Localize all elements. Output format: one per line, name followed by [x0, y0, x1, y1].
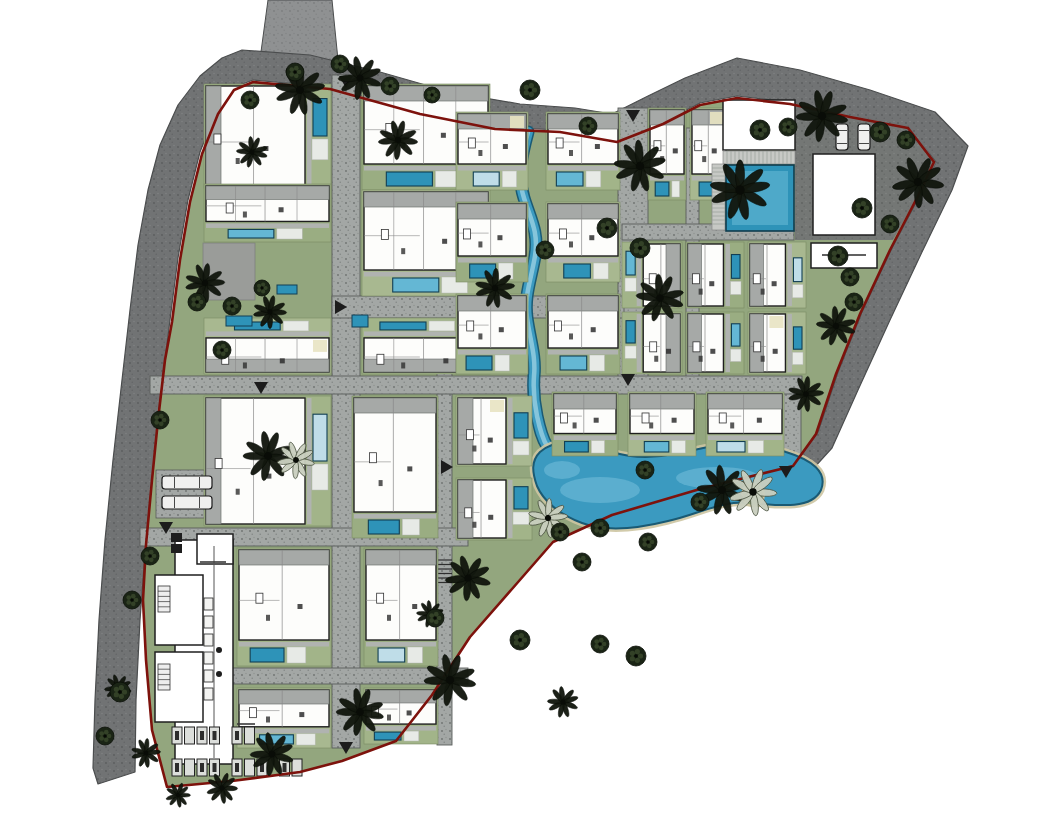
villa-unit	[546, 202, 620, 282]
bed-symbol	[560, 413, 567, 423]
bed-symbol	[249, 708, 256, 718]
villa-pool	[313, 99, 327, 136]
shrub-tree	[636, 461, 654, 479]
pool-deck	[287, 647, 306, 663]
villa-pool	[793, 258, 802, 282]
parking-stall	[185, 759, 195, 776]
villa-unit	[628, 392, 696, 456]
villa-roof	[554, 394, 616, 409]
bed-symbol	[693, 274, 700, 284]
shrub-tree	[151, 411, 169, 429]
shrub-tree	[520, 80, 540, 100]
bed-symbol	[695, 141, 702, 151]
bed-symbol	[642, 413, 649, 423]
shrub-tree	[828, 246, 848, 266]
pool-deck	[625, 278, 636, 291]
villa-pool	[655, 182, 669, 196]
shrub-tree	[852, 198, 872, 218]
car-symbol	[162, 476, 212, 489]
villa-pool	[514, 413, 528, 438]
bed-symbol	[369, 453, 376, 463]
villa-unit	[456, 396, 532, 466]
garden-pool	[226, 316, 252, 326]
shrub-tree	[254, 280, 270, 296]
palm-tree	[543, 682, 584, 723]
villa-pool	[473, 172, 499, 186]
pool-deck	[590, 355, 605, 371]
bed-symbol	[468, 138, 475, 148]
garden-pool	[352, 315, 368, 327]
villa-unit	[546, 294, 620, 374]
shrub-tree	[750, 120, 770, 140]
villa-pool	[560, 356, 587, 370]
resort-master-plan	[0, 0, 1053, 814]
pool-deck	[312, 139, 328, 160]
desk-symbol	[204, 652, 213, 664]
pool-deck	[792, 352, 803, 364]
bed-symbol	[559, 229, 566, 239]
bed-symbol	[693, 342, 700, 352]
shrub-tree	[579, 117, 597, 135]
shrub-tree	[897, 131, 915, 149]
desk-symbol	[204, 634, 213, 646]
car-symbol	[858, 124, 870, 150]
bed-symbol	[226, 203, 233, 213]
shrub-tree	[426, 609, 444, 627]
shrub-tree	[845, 293, 863, 311]
shrub-tree	[286, 63, 304, 81]
shrub-tree	[597, 218, 617, 238]
villa-roof	[548, 296, 618, 311]
villa-roof	[239, 550, 329, 565]
bed-symbol	[754, 342, 761, 352]
pool-deck	[730, 349, 741, 361]
pool-deck	[277, 228, 302, 239]
service-bin	[171, 533, 182, 542]
villa-roof	[354, 398, 436, 413]
bed-symbol	[214, 134, 221, 144]
villa-unit	[686, 242, 744, 308]
internal-road	[150, 376, 802, 394]
spa-building	[813, 154, 875, 235]
villa-unit	[552, 392, 618, 456]
pool-deck	[792, 285, 803, 298]
villa-roof	[366, 690, 436, 703]
car-symbol	[162, 496, 212, 509]
bed-symbol	[215, 458, 222, 468]
shrub-tree	[630, 238, 650, 258]
shrub-tree	[536, 241, 554, 259]
pool-deck	[296, 734, 315, 745]
bed-symbol	[377, 354, 384, 364]
shrub-tree	[573, 553, 591, 571]
bed-symbol	[650, 342, 657, 352]
villa-pool	[380, 322, 426, 330]
villa-pool	[368, 520, 399, 534]
bed-symbol	[556, 138, 563, 148]
shrub-tree	[188, 293, 206, 311]
villa-roof	[206, 186, 329, 199]
villa-roof	[666, 314, 680, 372]
shrub-tree	[691, 493, 709, 511]
villa-roof	[630, 394, 694, 409]
bed-symbol	[719, 413, 726, 423]
shrub-tree	[241, 91, 259, 109]
pool-deck	[730, 281, 741, 294]
pool-deck	[283, 321, 308, 331]
pool-deck	[586, 171, 601, 187]
villa-pool	[466, 356, 492, 370]
villa-pool	[556, 172, 583, 186]
villa-unit	[686, 312, 744, 374]
pool-deck	[402, 519, 419, 535]
shrub-tree	[331, 55, 349, 73]
villa-pool	[565, 442, 589, 452]
villa-pool	[514, 487, 528, 509]
villa-unit	[204, 184, 331, 242]
pool-deck	[591, 441, 604, 453]
shrub-tree	[841, 268, 859, 286]
parking-stall	[245, 759, 255, 776]
service-bin	[171, 544, 182, 553]
shrub-tree	[626, 646, 646, 666]
pool-deck	[495, 355, 509, 371]
pool-deck	[593, 263, 608, 279]
bed-symbol	[377, 593, 384, 603]
bed-symbol	[463, 229, 470, 239]
villa-pool	[564, 264, 591, 278]
villa-pool	[644, 442, 668, 452]
villa-unit	[706, 392, 784, 456]
parking-stall	[185, 727, 195, 744]
villa-unit	[352, 396, 438, 538]
stair-hatch	[158, 664, 170, 690]
villa-roof	[366, 550, 436, 565]
villa-pool	[393, 278, 439, 292]
pool-deck	[672, 181, 680, 197]
bed-symbol	[467, 321, 474, 331]
villa-unit	[456, 294, 528, 374]
shrub-tree	[591, 519, 609, 537]
pool-deck	[748, 441, 764, 453]
desk-symbol	[204, 616, 213, 628]
shrub-tree	[213, 341, 231, 359]
bed-symbol	[466, 430, 473, 440]
pool-deck	[502, 171, 516, 187]
villa-unit	[456, 202, 528, 282]
villa-unit	[748, 312, 806, 374]
shrub-tree	[551, 523, 569, 541]
desk-symbol	[204, 598, 213, 610]
shrub-tree	[110, 682, 130, 702]
shrub-tree	[223, 297, 241, 315]
villa-pool	[313, 414, 327, 461]
villa-roof	[458, 204, 526, 219]
desk-symbol	[204, 688, 213, 700]
shrub-tree	[381, 77, 399, 95]
bed-symbol	[554, 321, 561, 331]
bed-symbol	[381, 229, 388, 239]
shrub-tree	[96, 727, 114, 745]
bed-symbol	[465, 508, 472, 518]
pool-deck	[408, 647, 423, 663]
villa-pool	[250, 648, 284, 662]
pool-deck	[429, 321, 455, 331]
pool-deck	[513, 512, 529, 524]
villa-pool	[731, 324, 740, 346]
shrub-tree	[510, 630, 530, 650]
shrub-tree	[779, 118, 797, 136]
villa-pool	[378, 648, 405, 662]
villa-roof	[708, 394, 782, 409]
bed-symbol	[753, 274, 760, 284]
pool-deck	[312, 464, 328, 490]
shrub-tree	[424, 87, 440, 103]
shrub-tree	[870, 122, 890, 142]
pool-deck	[625, 346, 636, 358]
stair-hatch	[158, 586, 170, 612]
desk-symbol	[204, 670, 213, 682]
villa-pool	[731, 255, 740, 279]
villa-unit	[748, 242, 806, 308]
shrub-tree	[591, 635, 609, 653]
pool-deck	[513, 441, 529, 455]
bed-symbol	[256, 593, 263, 603]
villa-pool	[386, 172, 432, 186]
villa-pool	[793, 327, 802, 349]
villa-pool	[228, 229, 274, 238]
parking-stall	[245, 727, 255, 744]
pool-deck	[404, 731, 419, 741]
villa-roof	[548, 204, 618, 219]
pool-deck	[672, 441, 686, 453]
villa-pool	[717, 442, 745, 452]
site-plan-svg	[0, 0, 1053, 814]
villa-unit	[237, 548, 331, 666]
villa-unit	[456, 478, 532, 540]
shrub-tree	[639, 533, 657, 551]
shrub-tree	[881, 215, 899, 233]
villa-pool	[626, 321, 635, 343]
garden-pool	[277, 285, 297, 294]
shrub-tree	[141, 547, 159, 565]
reception-entry-room	[197, 534, 233, 564]
shrub-tree	[123, 591, 141, 609]
villa-unit	[622, 312, 682, 374]
car-symbol	[836, 124, 848, 150]
villa-roof	[239, 690, 329, 704]
